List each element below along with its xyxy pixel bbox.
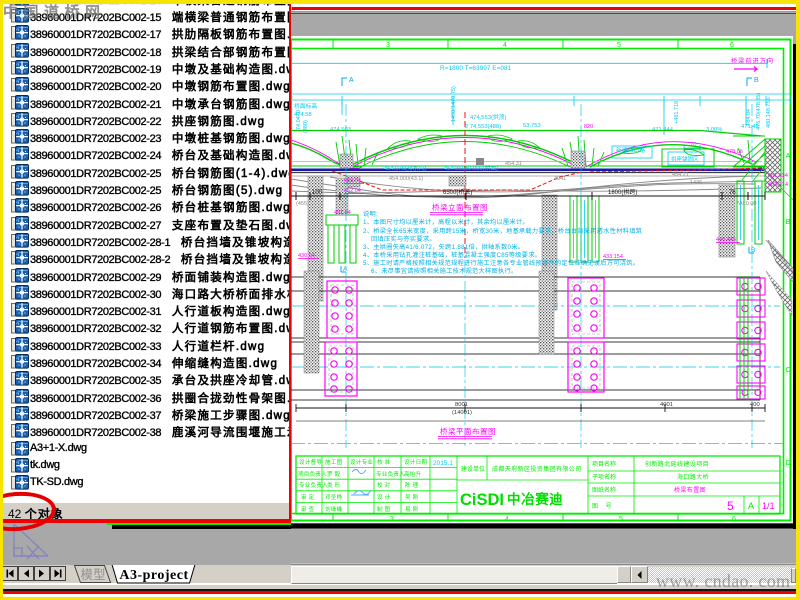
svg-text:100: 100 — [312, 190, 323, 196]
svg-text:+481.718: +481.718 — [674, 101, 680, 124]
svg-text:设 计: 设 计 — [377, 493, 391, 501]
svg-text:4: 4 — [503, 42, 507, 49]
svg-text:C: C — [785, 367, 790, 374]
svg-text:制 图: 制 图 — [377, 505, 391, 513]
svg-text:3: 3 — [390, 516, 394, 523]
svg-text:474,553(拱顶): 474,553(拱顶) — [470, 113, 506, 121]
svg-text:桥梁立面布置图: 桥梁立面布置图 — [432, 202, 488, 212]
svg-text:B: B — [751, 247, 755, 254]
svg-text:核 准: 核 准 — [377, 458, 391, 466]
svg-text:新建海口路: 新建海口路 — [616, 146, 645, 154]
svg-text:专业负责人: 专业负责人 — [299, 481, 328, 489]
svg-text:471.49: 471.49 — [741, 124, 759, 130]
svg-text:(455): (455) — [296, 201, 309, 207]
svg-text:桥梁平面布置图: 桥梁平面布置图 — [440, 426, 496, 436]
svg-text:454.000(43.1): 454.000(43.1) — [389, 176, 423, 182]
svg-text:5: 5 — [727, 499, 734, 513]
svg-text:1/1: 1/1 — [762, 501, 775, 511]
svg-text:创新路北延线建设项目: 创新路北延线建设项目 — [645, 460, 709, 468]
svg-text:项目名称: 项目名称 — [592, 460, 616, 468]
svg-text:A: A — [343, 266, 348, 273]
svg-text:专业负责人: 专业负责人 — [376, 470, 405, 478]
svg-text:回填压实与夯实要求。: 回填压实与夯实要求。 — [371, 235, 436, 243]
svg-text:3: 3 — [386, 42, 390, 49]
svg-text:说明:: 说明: — [363, 210, 378, 218]
svg-text:820: 820 — [584, 124, 593, 130]
svg-text:483.04: 483.04 — [344, 178, 361, 184]
svg-text:项目负责人: 项目负责人 — [298, 470, 327, 478]
svg-text:480.148.755: 480.148.755 — [766, 97, 772, 128]
svg-text:类 形: 类 形 — [327, 481, 341, 489]
svg-text:海口路大桥: 海口路大桥 — [677, 473, 709, 481]
svg-text:430.04: 430.04 — [298, 253, 315, 259]
svg-text:448.445: 448.445 — [716, 237, 736, 243]
svg-text:审 定: 审 定 — [301, 493, 315, 501]
svg-text:高怡升: 高怡升 — [404, 470, 422, 478]
svg-text:2015.1: 2015.1 — [433, 460, 453, 467]
svg-text:478.06: 478.06 — [726, 149, 743, 155]
svg-text:图纸名称: 图纸名称 — [592, 486, 616, 494]
svg-text:1800(拱跨): 1800(拱跨) — [608, 188, 637, 196]
svg-text:6: 6 — [730, 42, 734, 49]
svg-text:5、施工时请严格按照相关规范规程进行施工注意各专业管线预埋件: 5、施工时请严格按照相关规范规程进行施工注意各专业管线预埋件的定位准确无误后方可… — [363, 259, 639, 267]
svg-text:R=1800 T=63997 E=081: R=1800 T=63997 E=081 — [440, 65, 512, 72]
svg-text:桥梁布置图: 桥梁布置图 — [674, 486, 706, 494]
svg-text:A3-project: A3-project — [119, 568, 188, 583]
svg-text:D: D — [785, 460, 790, 467]
svg-text:桥面标高: 桥面标高 — [294, 102, 317, 110]
svg-text:1490(1470.75): 1490(1470.75) — [451, 86, 457, 122]
svg-text:6: 6 — [732, 516, 736, 523]
svg-text:建设单位: 建设单位 — [461, 465, 485, 473]
svg-text:53.753: 53.753 — [523, 123, 541, 129]
svg-text:474.58: 474.58 — [294, 112, 312, 118]
svg-text:设计专业: 设计专业 — [350, 458, 373, 466]
svg-text:7A±0.00: 7A±0.00 — [736, 201, 756, 207]
svg-text:施工图: 施工图 — [325, 458, 343, 466]
svg-text:2、桥梁全长65米宽度，采用跨15米，桥宽30米，地基承载力: 2、桥梁全长65米宽度，采用跨15米，桥宽30米，地基承载力要求，桥台台背采用透… — [363, 227, 643, 235]
svg-text:483.214: 483.214 — [768, 182, 788, 188]
svg-text:454.350±0.000(桥面): 454.350±0.000(桥面) — [444, 164, 498, 172]
svg-text:图 号: 图 号 — [592, 503, 612, 510]
svg-text:A: A — [349, 77, 354, 84]
svg-text:B: B — [786, 219, 791, 226]
svg-text:3、主拱圈矢高41/6.072，矢跨1.881倍，拱轴系数0: 3、主拱圈矢高41/6.072，矢跨1.881倍，拱轴系数0米。 — [363, 243, 524, 251]
svg-text:校 对: 校 对 — [377, 481, 391, 489]
svg-text:452.04: 452.04 — [344, 188, 361, 194]
svg-text:邓圣桦: 邓圣桦 — [325, 493, 343, 501]
svg-text:454.076(排水沟): 454.076(排水沟) — [384, 164, 426, 172]
svg-text:吴 刚: 吴 刚 — [405, 493, 419, 501]
svg-text:A: A — [748, 501, 754, 511]
svg-text:(14001): (14001) — [452, 410, 472, 416]
svg-text:5: 5 — [617, 42, 621, 49]
svg-text:76: 76 — [729, 190, 736, 196]
svg-text:B: B — [754, 77, 759, 84]
svg-text:桥梁前进方向: 桥梁前进方向 — [731, 57, 774, 65]
svg-text:罗 毅: 罗 毅 — [327, 470, 341, 478]
svg-text:4、本桥采用钻孔灌注桩基础，桩基混凝土强度C85等级要求。: 4、本桥采用钻孔灌注桩基础，桩基混凝土强度C85等级要求。 — [363, 251, 541, 259]
svg-text:400: 400 — [750, 402, 760, 408]
svg-text:刘继峰: 刘继峰 — [325, 505, 343, 513]
svg-text:6500(桥长): 6500(桥长) — [443, 188, 472, 196]
svg-text:设计督导: 设计督导 — [299, 458, 322, 466]
svg-text:4001: 4001 — [660, 402, 673, 408]
svg-text:4: 4 — [505, 516, 509, 523]
svg-text:1436: 1436 — [690, 180, 702, 186]
svg-text:481.334: 481.334 — [768, 173, 788, 179]
svg-text:成都天府新区投资集团有限公司: 成都天府新区投资集团有限公司 — [492, 465, 582, 473]
svg-text:6、未尽事宜请按照相关施工技术规范大样图执行。: 6、未尽事宜请按照相关施工技术规范大样图执行。 — [371, 267, 517, 275]
svg-text:子项名称: 子项名称 — [592, 473, 616, 481]
svg-text:易 刚: 易 刚 — [405, 505, 419, 513]
svg-text:8001: 8001 — [455, 402, 468, 408]
svg-text:A: A — [786, 153, 791, 160]
svg-text:设计日期: 设计日期 — [404, 458, 427, 466]
svg-text:4941: 4941 — [554, 176, 566, 182]
svg-text:中冶赛迪: 中冶赛迪 — [507, 491, 563, 507]
svg-text:陈 理: 陈 理 — [405, 481, 419, 489]
svg-text:1、本图尺寸均以厘米计，高程以米计，其余均以厘米计。: 1、本图尺寸均以厘米计，高程以米计，其余均以厘米计。 — [363, 218, 529, 226]
svg-text:451.04: 451.04 — [334, 210, 351, 216]
svg-text:5: 5 — [619, 516, 623, 523]
svg-text:454.31: 454.31 — [505, 161, 522, 167]
svg-text:CiSDI: CiSDI — [460, 491, 504, 509]
svg-text:454.21: 454.21 — [672, 172, 689, 178]
svg-text:2 74,553(488): 2 74,553(488) — [465, 124, 501, 130]
svg-text:模型: 模型 — [80, 568, 105, 582]
svg-text:审 查: 审 查 — [301, 505, 315, 513]
